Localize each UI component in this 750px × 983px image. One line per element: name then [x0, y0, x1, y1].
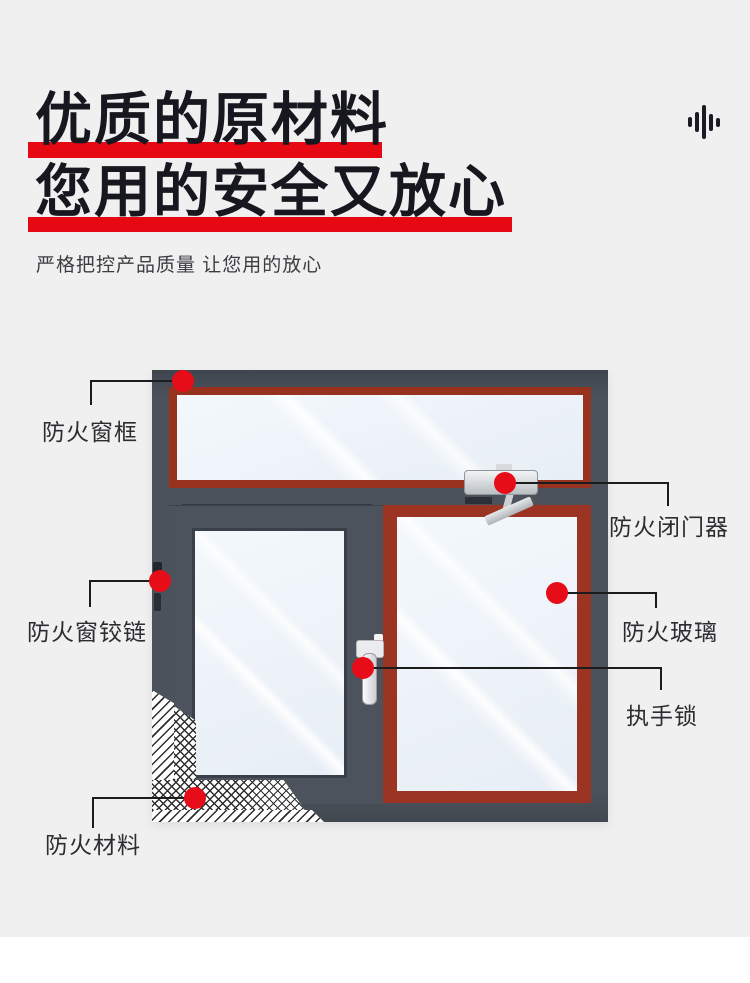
- callout-line-frame: [90, 380, 184, 382]
- label-fire-glass: 防火玻璃: [622, 613, 718, 647]
- callout-line-hinge: [89, 580, 91, 607]
- label-fire-window-hinge: 防火窗铰链: [27, 613, 147, 647]
- callout-line-material: [92, 797, 94, 828]
- callout-line-door-closer: [505, 482, 669, 484]
- callout-dot-material: [184, 787, 206, 809]
- page-title-line1: 优质的原材料: [35, 91, 389, 149]
- voice-waveform-icon[interactable]: [688, 104, 720, 140]
- label-fire-material: 防火材料: [45, 826, 141, 860]
- label-fire-window-frame: 防火窗框: [42, 413, 138, 447]
- callout-dot-glass: [546, 582, 568, 604]
- label-handle-lock: 执手锁: [626, 697, 698, 731]
- page-title-line2: 您用的安全又放心: [35, 163, 507, 221]
- left-casement-glass: [192, 528, 347, 778]
- callout-line-handle-lock: [363, 667, 662, 669]
- transom-glass: [177, 395, 583, 480]
- right-pane-glass: [397, 517, 577, 791]
- promo-page: 优质的原材料 您用的安全又放心 严格把控产品质量 让您用的放心 防火窗框 防火闭: [0, 0, 750, 983]
- callout-line-handle-lock: [660, 667, 662, 690]
- fireproof-material-hatch: [152, 780, 305, 810]
- callout-line-glass: [655, 592, 657, 608]
- hinge-icon: [154, 593, 161, 611]
- fireproof-material-hatch: [152, 810, 324, 822]
- callout-line-glass: [557, 592, 657, 594]
- page-subtitle: 严格把控产品质量 让您用的放心: [36, 250, 322, 277]
- bottom-white-strip: [0, 937, 750, 983]
- callout-line-door-closer: [667, 482, 669, 506]
- door-closer-plate: [465, 497, 492, 504]
- label-fire-door-closer: 防火闭门器: [609, 508, 729, 542]
- callout-dot-frame: [172, 370, 194, 392]
- callout-dot-handle-lock: [352, 657, 374, 679]
- callout-line-material: [92, 797, 196, 799]
- callout-dot-hinge: [149, 570, 171, 592]
- fire-window-photo: [152, 370, 608, 822]
- callout-line-frame: [90, 380, 92, 405]
- callout-dot-door-closer: [494, 472, 516, 494]
